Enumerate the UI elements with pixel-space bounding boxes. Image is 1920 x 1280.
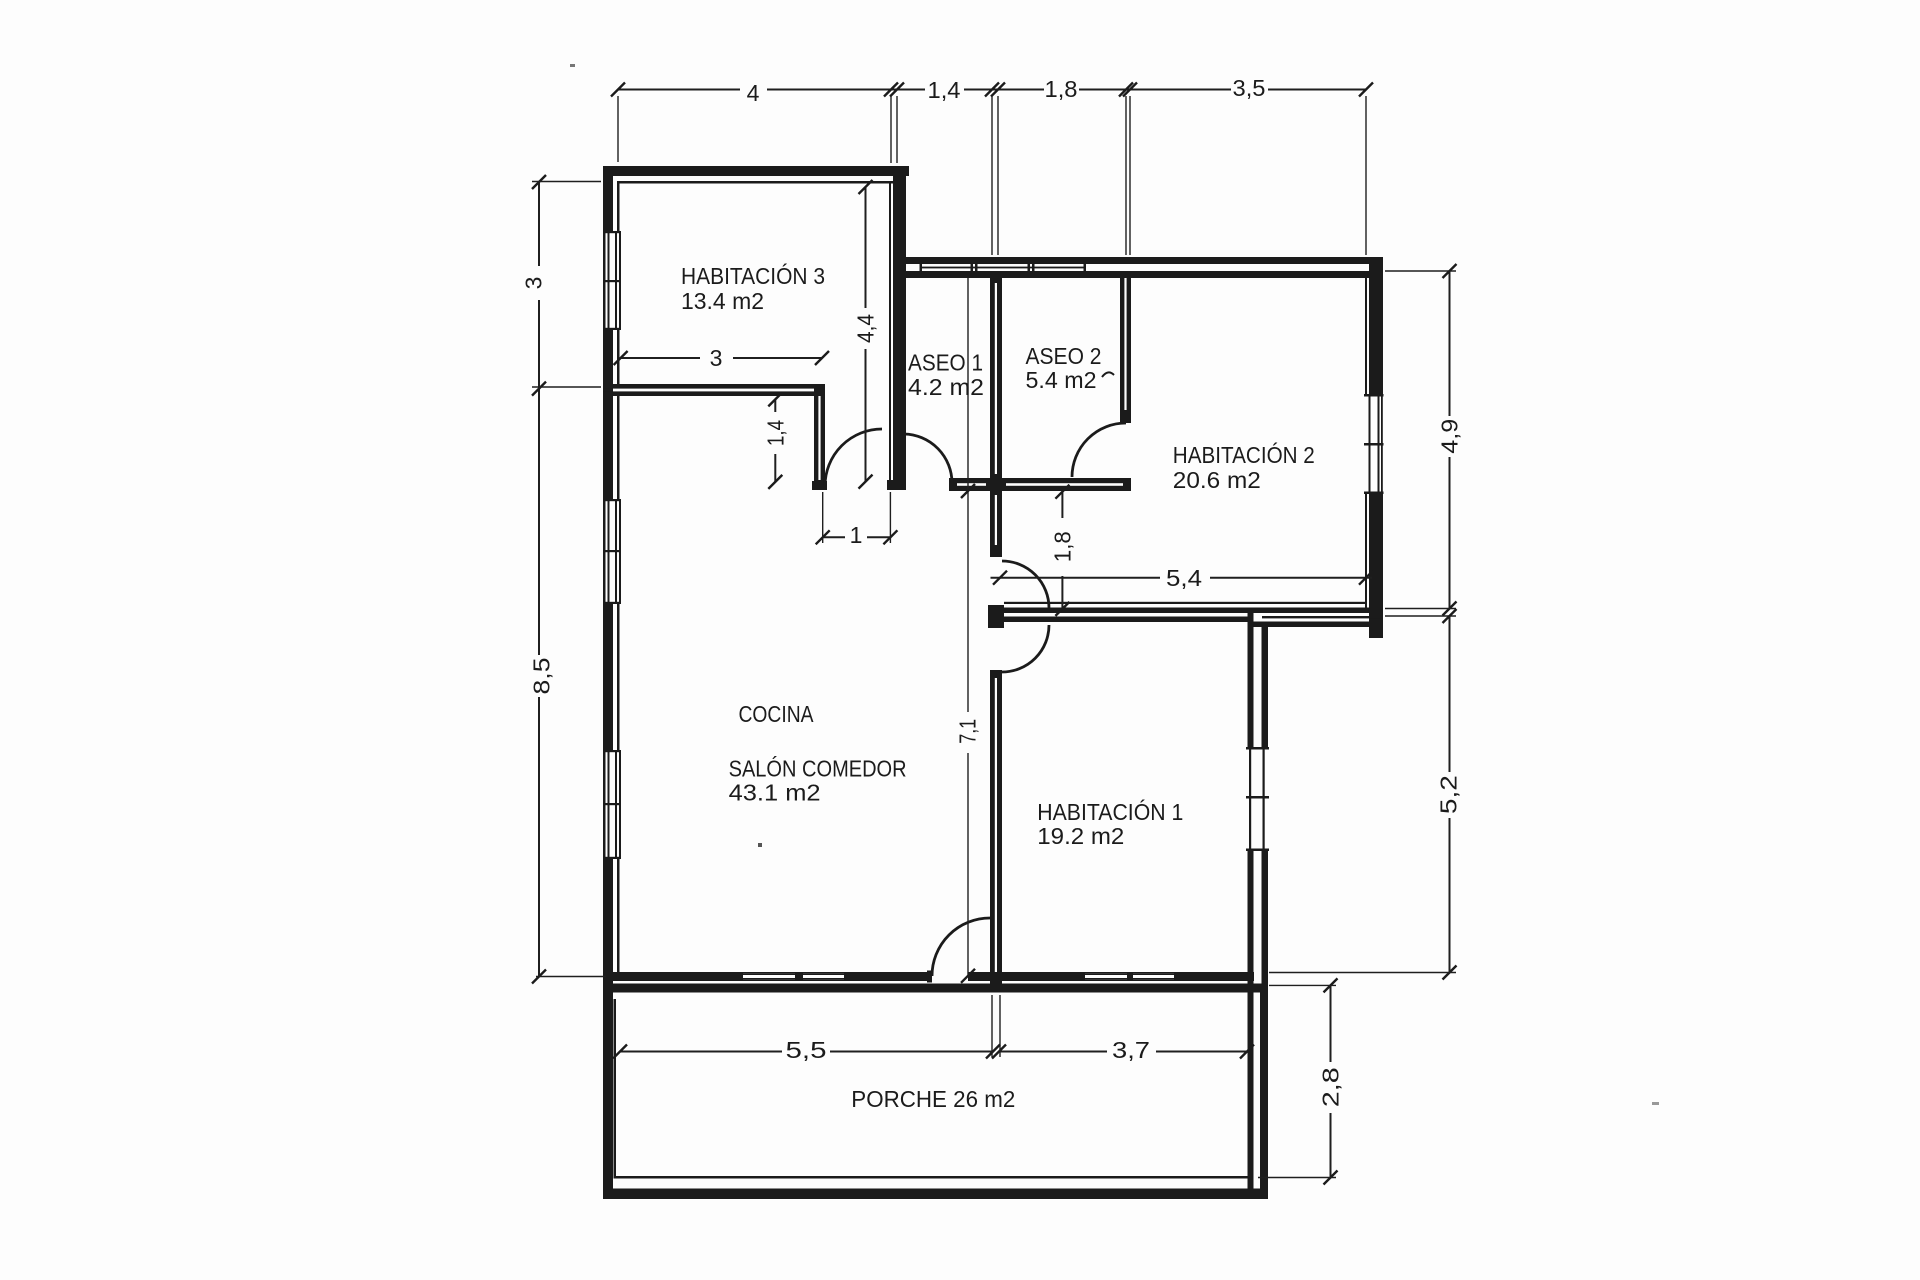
svg-text:HABITACIÓN 3: HABITACIÓN 3 (681, 263, 825, 289)
svg-text:3: 3 (710, 345, 723, 371)
svg-text:3,7: 3,7 (1112, 1037, 1150, 1063)
svg-text:3,5: 3,5 (1233, 75, 1266, 101)
svg-text:4,9: 4,9 (1437, 419, 1463, 454)
svg-text:4,4: 4,4 (853, 314, 879, 343)
svg-text:1,8: 1,8 (1045, 76, 1078, 102)
svg-text:COCINA: COCINA (739, 701, 815, 727)
svg-text:SALÓN COMEDOR: SALÓN COMEDOR (729, 756, 907, 782)
svg-text:19.2 m2: 19.2 m2 (1037, 823, 1124, 849)
svg-text:5,5: 5,5 (786, 1037, 827, 1063)
svg-text:5,4: 5,4 (1166, 565, 1202, 591)
svg-text:1: 1 (850, 522, 863, 548)
svg-text:4.2 m2: 4.2 m2 (908, 374, 984, 400)
svg-text:HABITACIÓN 1: HABITACIÓN 1 (1037, 799, 1183, 825)
svg-text:1,8: 1,8 (1049, 531, 1075, 562)
svg-text:2,8: 2,8 (1318, 1067, 1344, 1107)
svg-text:ASEO 2: ASEO 2 (1026, 343, 1102, 369)
svg-text:13.4 m2: 13.4 m2 (681, 288, 764, 314)
svg-text:8,5: 8,5 (529, 658, 555, 695)
svg-text:HABITACIÓN 2: HABITACIÓN 2 (1173, 442, 1315, 468)
svg-text:4: 4 (747, 80, 760, 106)
svg-text:3: 3 (521, 277, 547, 290)
svg-text:5.4 m2: 5.4 m2 (1026, 367, 1097, 393)
svg-text:43.1 m2: 43.1 m2 (729, 780, 821, 806)
svg-text:PORCHE 26 m2: PORCHE 26 m2 (851, 1086, 1015, 1112)
svg-text:5,2: 5,2 (1436, 775, 1462, 814)
svg-text:1,4: 1,4 (762, 420, 788, 446)
svg-text:1,4: 1,4 (928, 77, 961, 103)
svg-text:20.6 m2: 20.6 m2 (1173, 467, 1261, 493)
svg-text:7,1: 7,1 (954, 719, 980, 744)
svg-text:ASEO 1: ASEO 1 (908, 350, 983, 376)
